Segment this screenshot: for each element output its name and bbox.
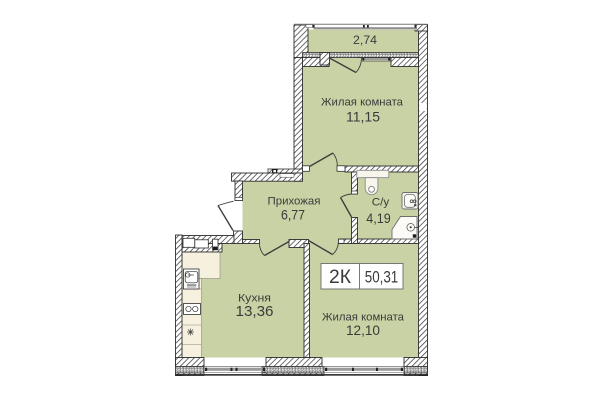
svg-text:13,36: 13,36 (236, 303, 274, 320)
svg-text:2,74: 2,74 (353, 33, 377, 47)
svg-text:2К: 2К (329, 266, 352, 288)
svg-text:Жилая комната: Жилая комната (321, 97, 404, 109)
svg-text:50,31: 50,31 (365, 267, 399, 286)
svg-text:4,19: 4,19 (366, 210, 391, 226)
svg-text:11,15: 11,15 (346, 109, 380, 125)
svg-text:С/у: С/у (372, 196, 390, 208)
svg-text:6,77: 6,77 (281, 207, 305, 223)
svg-text:12,10: 12,10 (346, 322, 380, 338)
